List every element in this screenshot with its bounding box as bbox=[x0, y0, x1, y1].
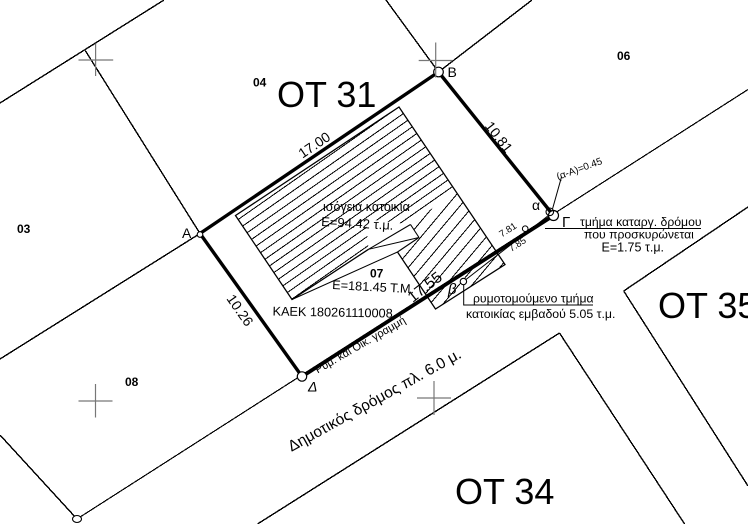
svg-text:B: B bbox=[448, 64, 457, 80]
svg-text:A: A bbox=[182, 225, 192, 241]
svg-text:που προσκυρώνεται: που προσκυρώνεται bbox=[584, 228, 694, 242]
svg-text:ισόγεια κατοικία: ισόγεια κατοικία bbox=[323, 200, 410, 214]
svg-text:OT 31: OT 31 bbox=[277, 74, 376, 115]
svg-text:06: 06 bbox=[617, 49, 631, 63]
svg-text:08: 08 bbox=[125, 375, 139, 389]
svg-text:Γ: Γ bbox=[562, 214, 570, 231]
svg-text:α: α bbox=[532, 197, 540, 213]
svg-text:ρυμοτομούμενο τμήμα: ρυμοτομούμενο τμήμα bbox=[473, 292, 594, 306]
svg-text:07: 07 bbox=[370, 267, 384, 281]
svg-text:03: 03 bbox=[17, 222, 31, 236]
svg-text:OT 34: OT 34 bbox=[455, 471, 554, 512]
svg-text:κατοικίας εμβαδού 5.05 τ.μ.: κατοικίας εμβαδού 5.05 τ.μ. bbox=[466, 307, 615, 321]
svg-text:ΚΑΕΚ 180261110008: ΚΑΕΚ 180261110008 bbox=[272, 305, 392, 321]
svg-text:Δ: Δ bbox=[307, 379, 317, 395]
svg-text:04: 04 bbox=[253, 76, 267, 90]
svg-text:Ε=1.75 τ.μ.: Ε=1.75 τ.μ. bbox=[602, 241, 665, 255]
svg-text:β: β bbox=[447, 281, 457, 298]
svg-text:OT 35: OT 35 bbox=[658, 285, 748, 326]
